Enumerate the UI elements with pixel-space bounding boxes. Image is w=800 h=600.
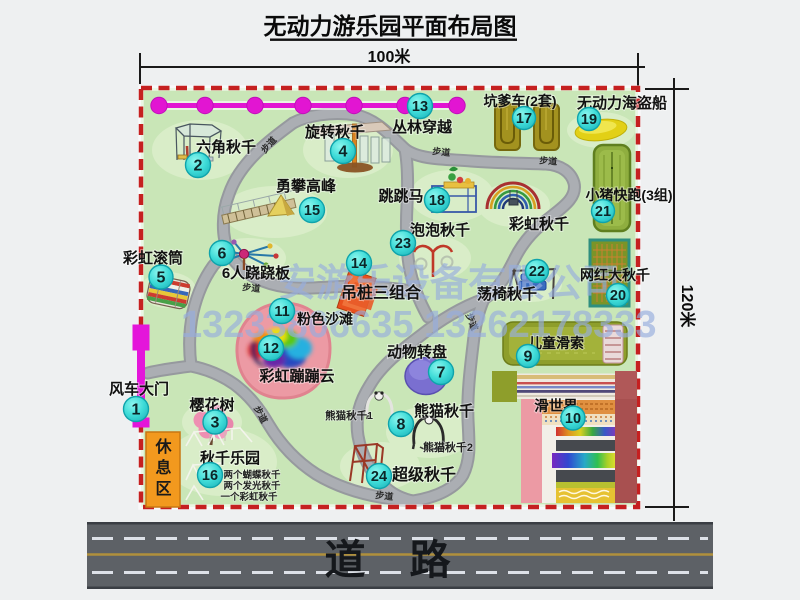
svg-text:超级秋千: 超级秋千 <box>391 465 456 484</box>
svg-text:步道: 步道 <box>432 145 451 158</box>
svg-text:21: 21 <box>595 204 611 220</box>
svg-text:7: 7 <box>437 365 446 382</box>
svg-text:道: 道 <box>325 537 366 583</box>
svg-text:一个彩虹秋千: 一个彩虹秋千 <box>220 491 278 503</box>
svg-text:两个发光秋千: 两个发光秋千 <box>223 480 281 492</box>
svg-text:19: 19 <box>581 112 597 128</box>
svg-text:泡泡秋千: 泡泡秋千 <box>410 221 470 239</box>
svg-text:100米: 100米 <box>368 47 412 66</box>
svg-text:路: 路 <box>410 537 452 583</box>
svg-text:两个蝴蝶秋千: 两个蝴蝶秋千 <box>223 469 281 481</box>
svg-text:无动力游乐园平面布局图: 无动力游乐园平面布局图 <box>264 13 517 39</box>
svg-text:17: 17 <box>516 111 532 127</box>
svg-text:吊桩三组合: 吊桩三组合 <box>341 283 422 302</box>
svg-text:熊猫秋千1: 熊猫秋千1 <box>325 409 373 422</box>
svg-text:动物转盘: 动物转盘 <box>387 343 447 361</box>
svg-text:16: 16 <box>202 468 218 484</box>
svg-text:步道: 步道 <box>375 489 394 502</box>
svg-text:勇攀高峰: 勇攀高峰 <box>276 177 337 195</box>
svg-text:24: 24 <box>371 469 387 485</box>
svg-text:3: 3 <box>211 415 220 432</box>
svg-text:彩虹蹦蹦云: 彩虹蹦蹦云 <box>258 367 334 385</box>
svg-text:6: 6 <box>218 246 227 263</box>
svg-text:23: 23 <box>395 236 411 252</box>
svg-text:8: 8 <box>397 417 406 434</box>
svg-text:彩虹滚筒: 彩虹滚筒 <box>122 249 183 267</box>
svg-text:粉色沙滩: 粉色沙滩 <box>297 311 353 327</box>
svg-text:6人跷跷板: 6人跷跷板 <box>222 264 291 282</box>
svg-text:丛林穿越: 丛林穿越 <box>392 118 453 136</box>
svg-text:5: 5 <box>157 270 166 287</box>
svg-text:1: 1 <box>132 402 141 419</box>
svg-text:熊猫秋千2: 熊猫秋千2 <box>423 440 473 454</box>
svg-text:13: 13 <box>412 99 428 115</box>
svg-text:12: 12 <box>263 341 279 357</box>
svg-text:120米: 120米 <box>678 285 697 329</box>
svg-text:4: 4 <box>339 144 348 161</box>
svg-text:13233806635 13262178333: 13233806635 13262178333 <box>181 304 657 346</box>
svg-text:10: 10 <box>565 411 581 427</box>
svg-text:步道: 步道 <box>242 281 261 294</box>
svg-text:六角秋千: 六角秋千 <box>196 138 256 156</box>
svg-text:休: 休 <box>154 437 172 456</box>
svg-text:2: 2 <box>194 158 203 175</box>
svg-text:熊猫秋千: 熊猫秋千 <box>414 402 474 420</box>
svg-text:20: 20 <box>610 288 626 304</box>
svg-text:跳跳马: 跳跳马 <box>378 187 423 205</box>
svg-text:风车大门: 风车大门 <box>109 380 169 398</box>
svg-text:旋转秋千: 旋转秋千 <box>304 123 365 141</box>
svg-text:14: 14 <box>351 256 367 272</box>
svg-text:18: 18 <box>429 193 445 209</box>
svg-text:11: 11 <box>274 304 289 320</box>
svg-text:彩虹秋千: 彩虹秋千 <box>508 215 569 233</box>
svg-text:荡椅秋千: 荡椅秋千 <box>477 285 537 303</box>
svg-text:区: 区 <box>155 480 171 498</box>
svg-text:步道: 步道 <box>539 154 558 166</box>
svg-text:22: 22 <box>529 264 545 280</box>
svg-text:网红大秋千: 网红大秋千 <box>580 267 650 283</box>
svg-text:9: 9 <box>524 349 533 366</box>
svg-text:15: 15 <box>304 203 320 219</box>
svg-text:安游乐设备有限公司: 安游乐设备有限公司 <box>278 263 620 305</box>
svg-text:息: 息 <box>155 458 171 477</box>
